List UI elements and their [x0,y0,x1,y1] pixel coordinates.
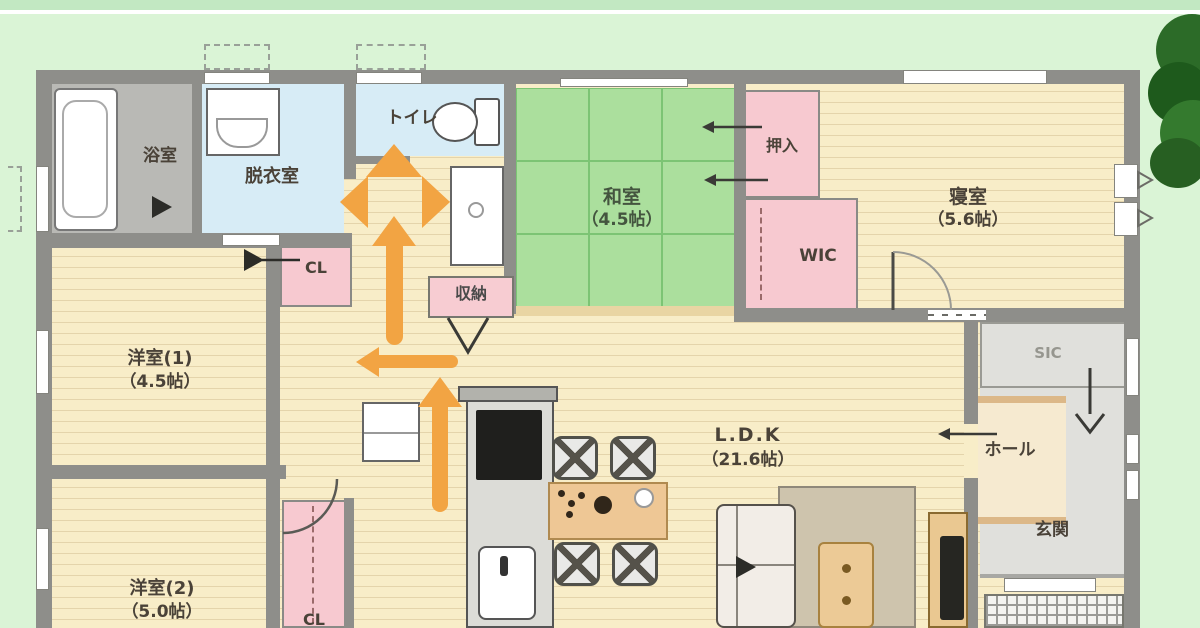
floor-plan-canvas: 浴室 脱衣室 トイレ 和室 （4.5帖） 押入 WIC 寝室 （5.6帖） 洋室… [0,0,1200,628]
label-bath: 浴室 [143,146,177,166]
flow-arrow-left-head [356,347,379,377]
flow-arrow-up-kitchen-head [418,377,462,407]
label-genkan: 玄関 [1035,520,1069,540]
label-toilet: トイレ [387,108,438,128]
label-bedroom: 寝室 [949,186,987,209]
label-bedroom-size: （5.6帖） [927,210,1008,230]
label-yoshitsu2: 洋室(2) [130,578,195,600]
label-hall: ホール [985,440,1036,460]
label-cl2: CL [303,610,325,628]
flow-arrow-up-corridor-shaft [386,245,403,345]
flow-junction-right-triangle [422,176,450,228]
label-wic: WIC [799,246,837,266]
flow-arrow-up-kitchen-shaft [432,405,448,512]
label-washitsu: 和室 [603,186,641,209]
plan-marks [0,0,1200,628]
label-sic: SIC [1034,344,1061,362]
label-oshiire: 押入 [766,136,798,155]
label-washitsu-size: （4.5帖） [581,210,662,230]
label-yoshitsu1: 洋室(1) [128,348,193,370]
flow-arrow-left-shaft [378,355,458,368]
label-ldk: L.D.K [714,424,781,447]
flow-junction-up-triangle [366,144,422,177]
label-yoshitsu1-size: （4.5帖） [119,372,200,392]
label-shuno: 収納 [455,284,487,303]
flow-junction-left-triangle [340,176,368,228]
flow-arrow-up-corridor-head [372,216,416,246]
label-dressing: 脱衣室 [245,166,299,188]
label-yoshitsu2-size: （5.0帖） [121,602,202,622]
label-cl1: CL [305,258,327,277]
label-ldk-size: （21.6帖） [702,450,795,470]
